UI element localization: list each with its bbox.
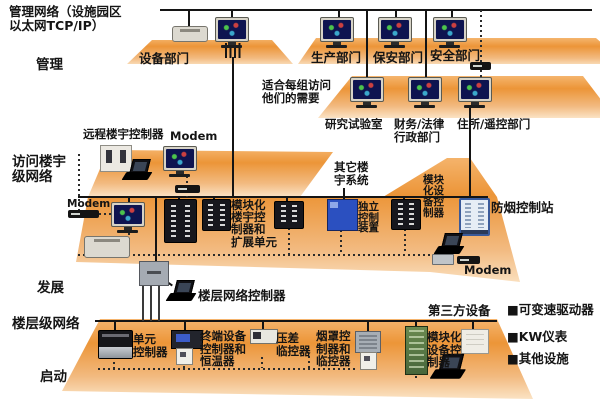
label-unit-controller: 单元 控制器	[133, 333, 168, 358]
desktop-research-lab	[350, 77, 384, 108]
dotted-access-fieldline	[78, 254, 438, 256]
drop-desktop-finance	[425, 10, 427, 78]
legend-other-facilities: ■其他设施	[507, 352, 569, 366]
label-other-building-systems: 其它楼 宇系统	[334, 161, 369, 186]
laptop-keyboard	[166, 293, 197, 301]
controller-slots	[220, 204, 225, 227]
monitor-base	[169, 174, 190, 177]
controller-slots	[185, 205, 190, 237]
label-equipment-dept: 设备部门	[139, 52, 189, 66]
pressure-monitor-device	[250, 329, 278, 344]
station-slots	[465, 203, 471, 228]
printer-equipment-dept	[172, 26, 208, 42]
label-finance-legal: 财务/法律 行政部门	[394, 118, 444, 143]
dotted-modem-top-right	[480, 10, 482, 62]
label-remote-building-controller: 远程楼宇控制器	[83, 128, 164, 141]
controller-slot	[106, 150, 112, 163]
level-label-access: 访问楼宇 级网络	[12, 155, 66, 185]
black-controller-1	[164, 199, 197, 243]
monitor-base	[221, 45, 242, 48]
controller-slots	[292, 205, 297, 225]
station-slots	[478, 203, 484, 228]
level-label-development: 发展	[37, 281, 64, 296]
computer-screen	[378, 17, 412, 42]
monitor-base	[414, 105, 435, 108]
printer-access-left	[84, 236, 130, 258]
desktop-finance-legal	[408, 77, 442, 108]
laptop-keyboard	[434, 246, 465, 254]
dotted-stub-controller-3	[288, 228, 290, 254]
network-architecture-diagram: 管理网络（设施园区 以太网TCP/IP） 管理 访问楼宇 级网络 发展 楼层级网…	[0, 0, 600, 400]
desktop-safety-dept	[433, 17, 467, 48]
dotted-stub-controller-4	[404, 229, 406, 254]
bus-management-network	[160, 9, 592, 11]
computer-screen	[215, 17, 249, 42]
label-residence-remote: 住所/遥控部门	[457, 118, 530, 131]
dotted-stub-pressure	[261, 357, 263, 368]
label-modem-right: Modem	[464, 264, 511, 277]
riser-management-to-access	[232, 57, 234, 197]
label-modem-left: Modem	[67, 199, 110, 211]
legs-floor-network-controller	[142, 283, 162, 321]
monitor-base	[464, 105, 485, 108]
legend-kw-meters: ■KW仪表	[507, 330, 567, 344]
dotted-stub-hood	[308, 356, 310, 368]
controller-slots	[171, 205, 176, 237]
laptop-keyboard	[430, 369, 467, 378]
label-floor-network-controller: 楼层网络控制器	[198, 289, 286, 303]
controller-slots	[281, 205, 286, 225]
label-modem-top: Modem	[170, 130, 217, 143]
legend-variable-speed-drives: ■可变速驱动器	[507, 303, 594, 317]
computer-screen	[320, 17, 354, 42]
unit-controller-device	[98, 330, 133, 359]
label-modular-equipment-controller-floor: 模块化 设备控 制器	[427, 331, 462, 369]
desktop-security-dept	[378, 17, 412, 48]
laptop-remote-access	[123, 159, 153, 182]
desktop-equipment-dept	[215, 17, 249, 48]
controller-slots	[208, 204, 213, 227]
floor-network-controller-box	[139, 261, 169, 286]
label-hood-controller: 烟罩控 制器和 临控器	[316, 330, 351, 368]
riser-access-to-development	[155, 197, 157, 262]
third-party-device-box	[461, 329, 489, 354]
modem-tray-right	[432, 254, 454, 265]
black-controller-3	[274, 201, 304, 229]
controller-slots	[398, 203, 403, 225]
smoke-control-station-device	[459, 198, 490, 236]
label-production-dept: 生产部门	[311, 51, 361, 65]
modem-bar-mid	[175, 185, 200, 193]
label-independent-control: 独立 控制 装置	[358, 202, 379, 234]
level-label-floor: 楼层级网络	[12, 317, 80, 332]
computer-screen	[163, 146, 197, 171]
desktop-residence-remote	[458, 77, 492, 108]
drop-desktop-research	[366, 10, 368, 78]
monitor-base	[356, 105, 377, 108]
label-modular-building-controller: 模块化 楼宇控 制器和 扩展单元	[231, 199, 277, 248]
label-third-party-devices: 第三方设备	[428, 304, 491, 318]
monitor-base	[326, 45, 347, 48]
modem-device-top-right	[470, 62, 491, 70]
computer-screen	[111, 202, 145, 227]
dotted-stub-bluebox	[340, 230, 342, 254]
laptop-access-right	[435, 233, 465, 256]
monitor-base	[117, 230, 138, 233]
thermostat-device	[176, 348, 193, 365]
green-modular-controller-device	[405, 326, 428, 375]
black-controller-2	[202, 199, 231, 231]
drop-third-party-box	[472, 321, 474, 329]
label-smoke-control-station: 防烟控制站	[491, 201, 554, 215]
desktop-modem-top	[163, 146, 197, 177]
desktop-access-left	[111, 202, 145, 233]
computer-screen	[433, 17, 467, 42]
independent-control-device	[327, 199, 358, 231]
drop-pressure-monitor	[262, 321, 264, 329]
label-security-dept: 保安部门	[373, 51, 423, 65]
label-pressure-monitor: 压差 临控器	[276, 332, 311, 357]
level-label-management: 管理	[36, 58, 63, 73]
label-access-note: 适合每组访问 他们的需要	[262, 79, 331, 104]
label-modular-equipment-controller-mid: 模块 化设 备控 制器	[423, 175, 444, 219]
hood-sensor-device	[360, 352, 377, 370]
diagram-title: 管理网络（设施园区 以太网TCP/IP）	[9, 5, 122, 33]
black-controller-4	[391, 199, 421, 230]
hood-controller-device	[355, 331, 381, 353]
level-label-startup: 启动	[40, 370, 67, 385]
laptop-development	[167, 280, 197, 303]
drop-unit-controller	[114, 321, 116, 330]
drop-printer-equipment	[188, 10, 190, 27]
label-terminal-controller: 终端设备 控制器和 恒温器	[200, 330, 246, 368]
computer-screen	[458, 77, 492, 102]
drop-hood-controller	[367, 321, 369, 331]
label-research-lab: 研究试验室	[325, 118, 383, 131]
modem-bar-left	[68, 210, 99, 218]
laptop-keyboard	[122, 172, 153, 180]
controller-slots	[409, 203, 414, 225]
computer-screen	[350, 77, 384, 102]
computer-screen	[408, 77, 442, 102]
label-safety-dept: 安全部门	[430, 49, 480, 63]
drop-terminal-controller	[184, 321, 186, 330]
monitor-base	[384, 45, 405, 48]
desktop-production-dept	[320, 17, 354, 48]
dotted-floor-fieldline	[98, 368, 356, 370]
terminal-controller-device	[171, 330, 203, 349]
